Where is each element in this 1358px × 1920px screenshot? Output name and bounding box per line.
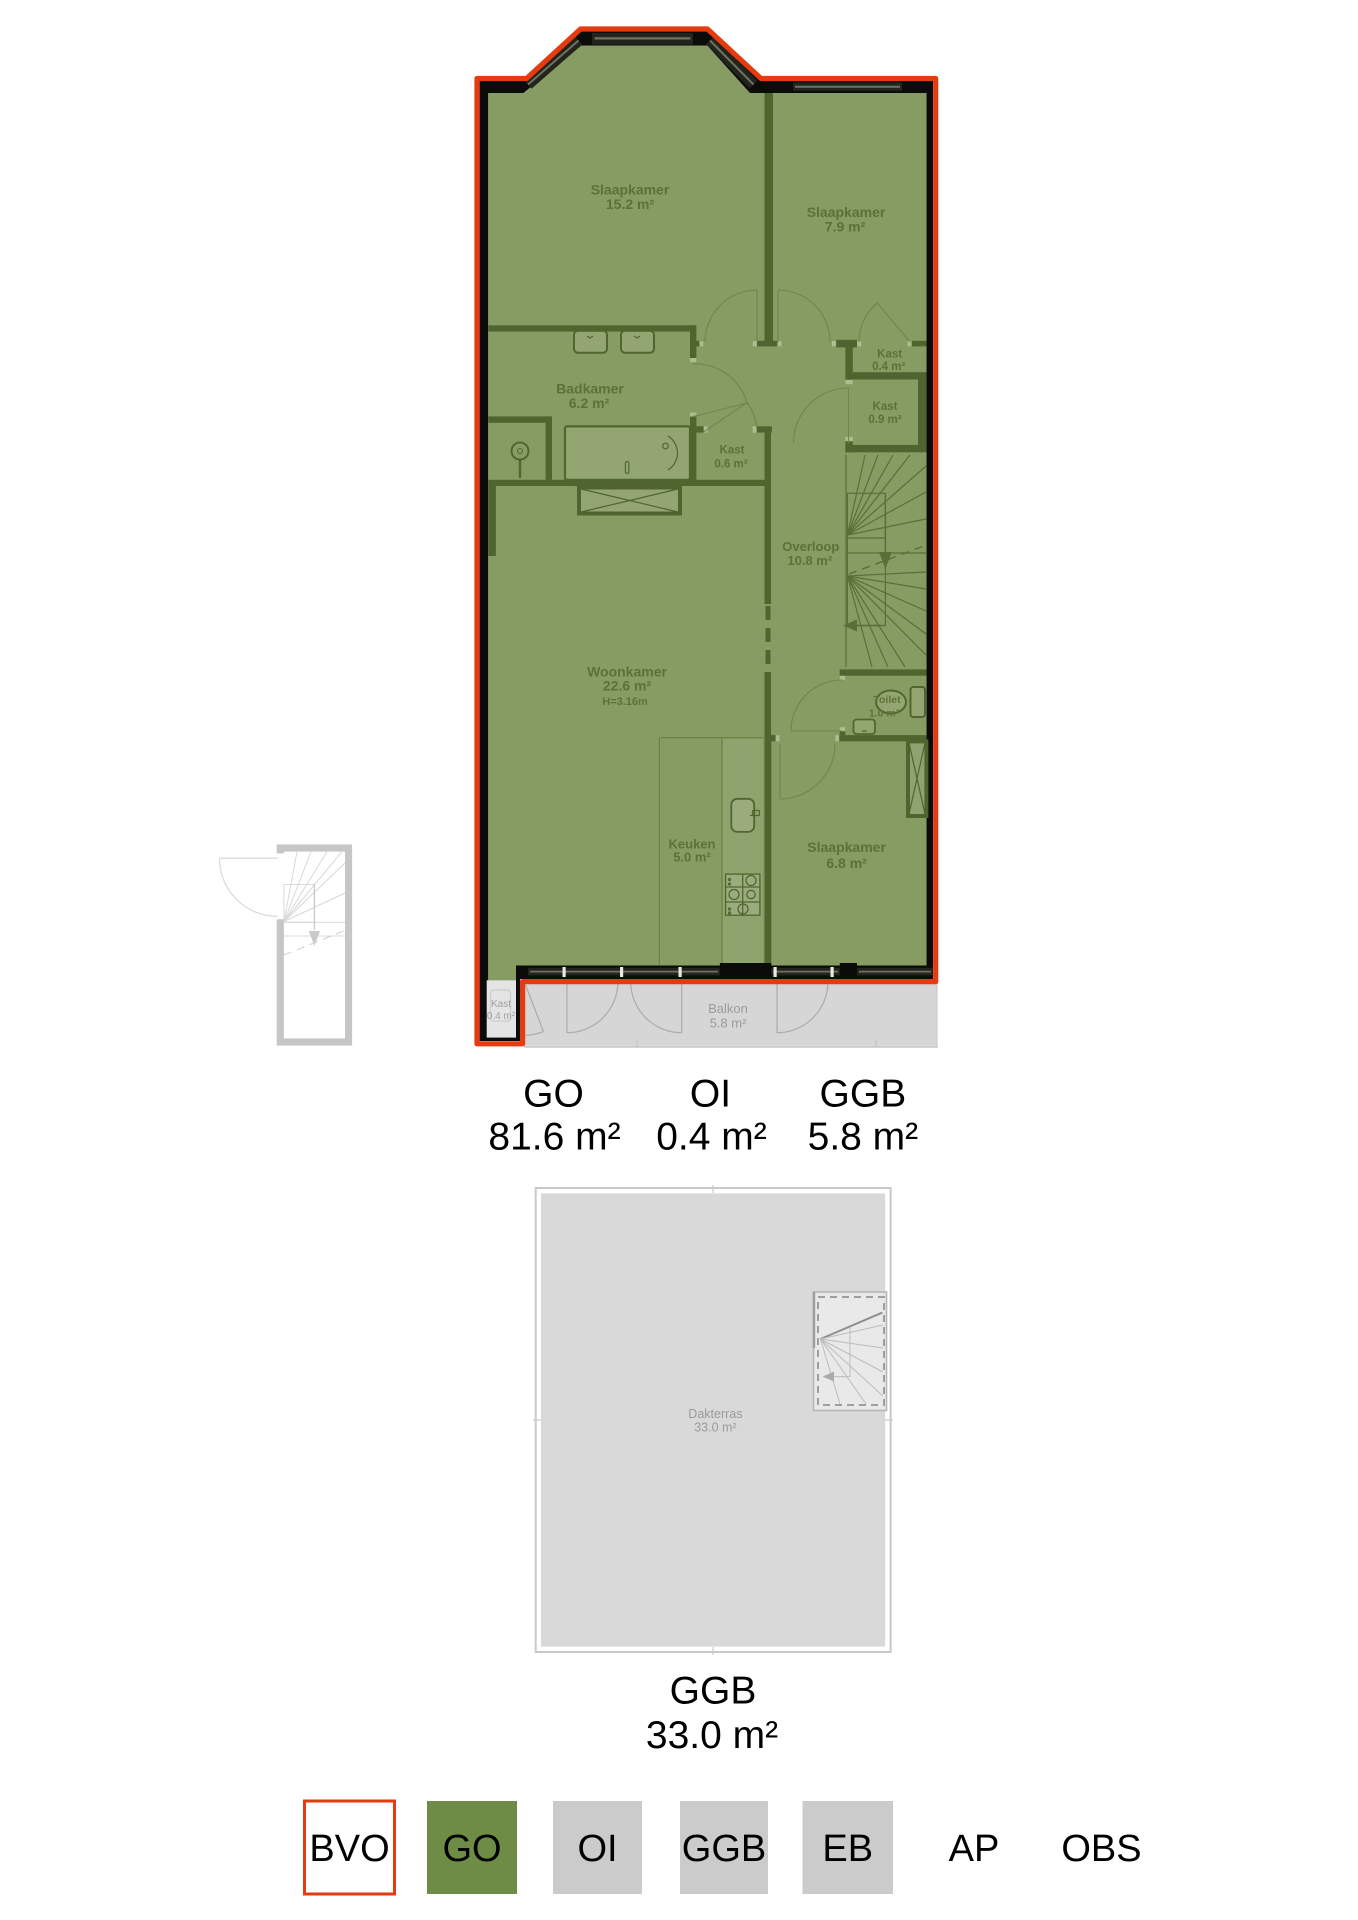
svg-text:10.8 m²: 10.8 m² bbox=[787, 553, 832, 568]
svg-text:0.4 m²: 0.4 m² bbox=[487, 1011, 516, 1022]
svg-text:33.0 m²: 33.0 m² bbox=[646, 1714, 778, 1757]
svg-text:5.0 m²: 5.0 m² bbox=[673, 849, 711, 864]
svg-text:OBS: OBS bbox=[1061, 1828, 1141, 1870]
svg-text:EB: EB bbox=[822, 1828, 873, 1870]
svg-text:0.9 m²: 0.9 m² bbox=[868, 414, 901, 426]
svg-text:GGB: GGB bbox=[820, 1073, 907, 1116]
svg-text:Kast: Kast bbox=[491, 999, 511, 1010]
svg-text:Kast: Kast bbox=[877, 349, 902, 361]
svg-text:6.2 m²: 6.2 m² bbox=[569, 395, 610, 411]
svg-text:Toilet: Toilet bbox=[873, 694, 901, 706]
svg-text:7.9 m²: 7.9 m² bbox=[825, 219, 866, 235]
svg-text:5.8 m²: 5.8 m² bbox=[808, 1115, 919, 1158]
svg-text:81.6 m²: 81.6 m² bbox=[488, 1115, 620, 1158]
svg-text:0.4 m²: 0.4 m² bbox=[872, 361, 905, 373]
svg-text:OI: OI bbox=[577, 1828, 617, 1870]
svg-text:H=3.16m: H=3.16m bbox=[602, 696, 648, 708]
svg-text:Kast: Kast bbox=[873, 401, 898, 413]
svg-text:Dakterras: Dakterras bbox=[688, 1407, 742, 1421]
svg-text:1.0 m²: 1.0 m² bbox=[869, 708, 900, 720]
svg-text:GO: GO bbox=[523, 1073, 584, 1116]
svg-text:GGB: GGB bbox=[682, 1828, 766, 1870]
svg-text:Balkon: Balkon bbox=[708, 1001, 748, 1016]
svg-text:0.6 m²: 0.6 m² bbox=[714, 459, 747, 471]
svg-text:BVO: BVO bbox=[309, 1828, 389, 1870]
svg-text:AP: AP bbox=[949, 1828, 1000, 1870]
svg-text:Kast: Kast bbox=[720, 445, 745, 457]
svg-text:OI: OI bbox=[690, 1073, 731, 1116]
svg-text:GGB: GGB bbox=[670, 1670, 757, 1713]
svg-text:Overloop: Overloop bbox=[782, 539, 839, 554]
svg-text:Slaapkamer: Slaapkamer bbox=[807, 839, 886, 855]
svg-text:22.6 m²: 22.6 m² bbox=[603, 677, 652, 693]
svg-text:6.8 m²: 6.8 m² bbox=[826, 855, 867, 871]
svg-text:15.2 m²: 15.2 m² bbox=[606, 196, 655, 212]
svg-text:0.4 m²: 0.4 m² bbox=[656, 1115, 767, 1158]
svg-text:GO: GO bbox=[442, 1828, 501, 1870]
svg-text:5.8 m²: 5.8 m² bbox=[710, 1016, 748, 1031]
svg-text:33.0 m²: 33.0 m² bbox=[694, 1421, 736, 1435]
